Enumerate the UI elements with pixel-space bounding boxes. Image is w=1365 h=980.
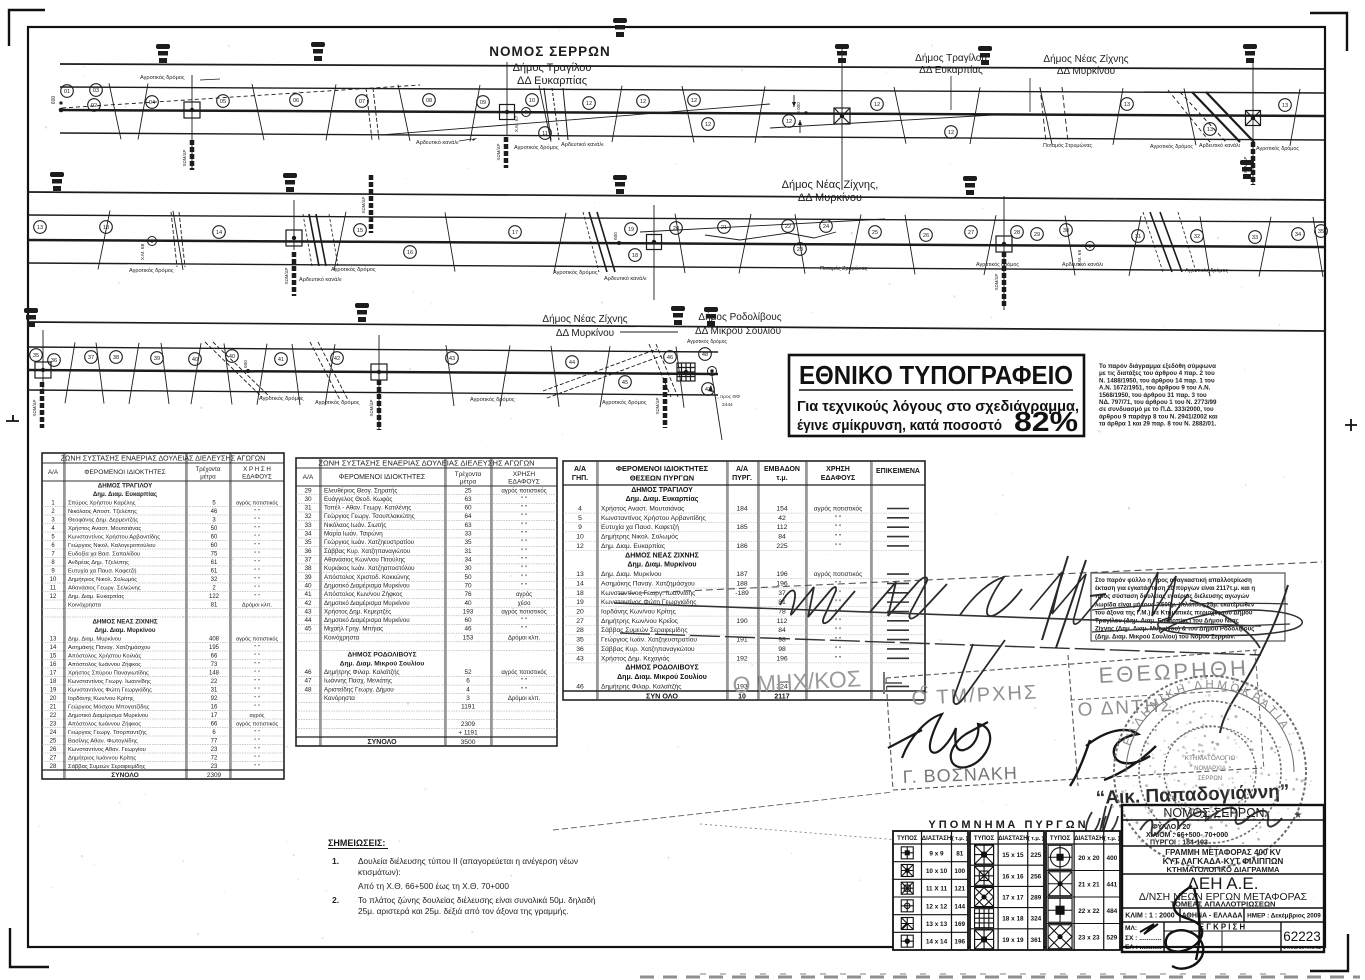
svg-text:35: 35 xyxy=(576,637,584,644)
svg-text:148: 148 xyxy=(209,670,220,676)
svg-text:13: 13 xyxy=(50,636,57,642)
svg-text:Αγροτικός δρόμος: Αγροτικός δρόμος xyxy=(1256,145,1299,152)
svg-text:Ποταμός Στρυμώνας: Ποταμός Στρυμώνας xyxy=(1043,142,1093,149)
svg-text:186: 186 xyxy=(736,543,748,550)
svg-text:″ ″: ″ ″ xyxy=(254,517,260,523)
svg-text:Α/Α: Α/Α xyxy=(574,466,586,473)
svg-text:07: 07 xyxy=(359,99,365,105)
svg-text:ΔΙΑΣΤΑΣΗ: ΔΙΑΣΤΑΣΗ xyxy=(922,836,951,842)
svg-text:ΤΥΠΟΣ: ΤΥΠΟΣ xyxy=(974,836,995,842)
svg-text:Α/Α: Α/Α xyxy=(736,466,748,473)
svg-text:ΔΔ Ευκαρπίας: ΔΔ Ευκαρπίας xyxy=(517,75,587,87)
svg-text:Αγροτικός δρόμος: Αγροτικός δρόμος xyxy=(129,267,174,274)
svg-text:″ ″: ″ ″ xyxy=(254,509,260,515)
svg-text:11: 11 xyxy=(542,131,548,137)
svg-text:13 x 13: 13 x 13 xyxy=(926,921,948,928)
svg-text:62223: 62223 xyxy=(1283,929,1321,944)
svg-text:Χ.Μ. 68: Χ.Μ. 68 xyxy=(140,243,146,260)
svg-text:″ ″: ″ ″ xyxy=(835,655,842,662)
svg-text:17: 17 xyxy=(50,670,57,676)
svg-text:1191: 1191 xyxy=(461,704,475,711)
svg-text:46: 46 xyxy=(304,669,312,676)
svg-text:25: 25 xyxy=(464,487,472,494)
svg-text:1.: 1. xyxy=(332,856,339,866)
svg-text:Αγροτικός δρόμος: Αγροτικός δρόμος xyxy=(602,399,647,406)
svg-text:35: 35 xyxy=(464,539,472,546)
svg-text:9: 9 xyxy=(578,524,582,531)
svg-text:προς ΘΦ: προς ΘΦ xyxy=(720,394,740,400)
svg-text:46: 46 xyxy=(464,626,472,633)
svg-text:Δημήτρης Φιλαρ. Καλαϊτζής: Δημήτρης Φιλαρ. Καλαϊτζής xyxy=(324,669,400,676)
svg-text:31: 31 xyxy=(211,687,218,693)
svg-text:Απόστολος Ιωάννου Ζήφκος: Απόστολος Ιωάννου Ζήφκος xyxy=(68,720,141,727)
svg-text:16: 16 xyxy=(50,662,57,668)
svg-text:225: 225 xyxy=(776,543,788,550)
svg-text:66: 66 xyxy=(211,653,218,659)
svg-text:ΠΥΡΓΟΙ : 184-193: ΠΥΡΓΟΙ : 184-193 xyxy=(1150,840,1208,847)
svg-text:12: 12 xyxy=(640,99,646,105)
svg-text:σε συνδυασμό με το Π.Δ. 333/20: σε συνδυασμό με το Π.Δ. 333/2000, του xyxy=(1099,406,1214,413)
svg-text:αγρός: αγρός xyxy=(249,712,264,719)
svg-text:Ευάγγελος Θεοδ. Κωφός: Ευάγγελος Θεοδ. Κωφός xyxy=(324,496,392,503)
svg-text:324: 324 xyxy=(1031,916,1042,923)
svg-text:ΚΤΗΜΑΤΟΛΟΓΙΚΟ ΔΙΑΓΡΑΜΜΑ: ΚΤΗΜΑΤΟΛΟΓΙΚΟ ΔΙΑΓΡΑΜΜΑ xyxy=(1166,865,1280,874)
svg-text:ΣΥΝΟΛΟ: ΣΥΝΟΛΟ xyxy=(367,739,397,746)
svg-text:2309: 2309 xyxy=(207,772,222,779)
svg-text:18: 18 xyxy=(632,253,638,259)
svg-text:42: 42 xyxy=(334,356,340,362)
svg-text:Αρδευτικό κανάλι: Αρδευτικό κανάλι xyxy=(299,276,342,283)
svg-text:75: 75 xyxy=(211,551,218,557)
svg-text:45: 45 xyxy=(622,380,628,386)
svg-text:τ.μ.: τ.μ. xyxy=(776,475,787,482)
svg-text:Γεώργιος Ιωάν. Χατζηευστρατίου: Γεώργιος Ιωάν. Χατζηευστρατίου xyxy=(601,636,697,644)
svg-text:34: 34 xyxy=(464,556,472,563)
svg-text:( τ.μ. ): ( τ.μ. ) xyxy=(1104,836,1120,842)
svg-text:Σπύρος Χρήστου Καρέλης: Σπύρος Χρήστου Καρέλης xyxy=(68,499,136,506)
svg-text:ΑΘΗΝΑ - ΕΛΛΑΔΑ: ΑΘΗΝΑ - ΕΛΛΑΔΑ xyxy=(1182,913,1243,920)
svg-text:ΔΔ Μικρού Σουλίου: ΔΔ Μικρού Σουλίου xyxy=(695,325,781,337)
svg-text:35: 35 xyxy=(304,539,312,546)
svg-text:ΧΡΗΣΗ: ΧΡΗΣΗ xyxy=(826,466,850,473)
svg-text:ΔΗΜΟΣ ΤΡΑΓΙΛΟΥ: ΔΗΜΟΣ ΤΡΑΓΙΛΟΥ xyxy=(98,482,153,489)
svg-text:με τις διατάξες του άρθρου 4 π: με τις διατάξες του άρθρου 4 παρ. 2 του xyxy=(1099,370,1215,377)
svg-text:Δήμος Νέας Ζίχνης: Δήμος Νέας Ζίχνης xyxy=(542,313,627,325)
svg-text:84: 84 xyxy=(778,534,786,541)
svg-text:13: 13 xyxy=(1124,102,1130,108)
svg-text:ΔΕΗ Α.Ε.: ΔΕΗ Α.Ε. xyxy=(1188,874,1259,893)
svg-text:14: 14 xyxy=(50,645,57,651)
svg-text:″ ″: ″ ″ xyxy=(254,687,260,693)
svg-text:Δημ. Διαμ. Μικρού Σουλίου: Δημ. Διαμ. Μικρού Σουλίου xyxy=(340,659,425,667)
svg-text:ΕΔΑΦΟΥΣ: ΕΔΑΦΟΥΣ xyxy=(508,479,540,486)
svg-text:αγρός ποτιστικός: αγρός ποτιστικός xyxy=(501,487,546,494)
svg-text:77: 77 xyxy=(211,738,218,744)
svg-text:μέτρα: μέτρα xyxy=(200,474,216,481)
svg-text:αγρός ποτιστικός: αγρός ποτιστικός xyxy=(236,499,279,506)
svg-text:Χρήστος Αναστ. Μουτσιάνας: Χρήστος Αναστ. Μουτσιάνας xyxy=(601,504,684,512)
svg-text:″ ″: ″ ″ xyxy=(254,704,260,710)
svg-text:84: 84 xyxy=(778,627,786,634)
svg-text:ΧΩΜ/ΔΡ: ΧΩΜ/ΔΡ xyxy=(182,149,187,166)
svg-text:Κωνσταντίνος Χρήστου Αρβανιτίδ: Κωνσταντίνος Χρήστου Αρβανιτίδης xyxy=(68,533,160,540)
svg-text:Ανδρέας Δημ. Τζελέπης: Ανδρέας Δημ. Τζελέπης xyxy=(68,559,129,566)
svg-text:Αγροτικός δρόμος: Αγροτικός δρόμος xyxy=(331,266,376,273)
svg-text:Χρήστος Δημ. Κεχαγιάς: Χρήστος Δημ. Κεχαγιάς xyxy=(601,654,669,662)
svg-text:Τοπέλ - Αθαν. Γεωργ. Κατιλένης: Τοπέλ - Αθαν. Γεωργ. Κατιλένης xyxy=(324,505,411,512)
svg-text:144: 144 xyxy=(954,903,965,910)
svg-text:81: 81 xyxy=(211,602,218,608)
svg-text:ΧΩΜ/ΔΡ: ΧΩΜ/ΔΡ xyxy=(32,399,37,416)
svg-text:37: 37 xyxy=(88,355,94,361)
svg-text:26: 26 xyxy=(923,233,929,239)
svg-text:28: 28 xyxy=(576,627,584,634)
svg-text:43: 43 xyxy=(576,655,584,662)
svg-text:Μαρία Ιωάν. Τσιρώνη: Μαρία Ιωάν. Τσιρώνη xyxy=(324,531,383,538)
svg-text:256: 256 xyxy=(1031,873,1042,880)
svg-text:ΦΕΡΟΜΕΝΟΙ ΙΔΙΟΚΤΗΤΕΣ: ΦΕΡΟΜΕΝΟΙ ΙΔΙΟΚΤΗΤΕΣ xyxy=(339,474,426,481)
svg-text:αγρός ποτιστικός: αγρός ποτιστικός xyxy=(501,608,546,615)
svg-text:17: 17 xyxy=(211,713,218,719)
svg-text:Χ Ρ Η Σ Η: Χ Ρ Η Σ Η xyxy=(243,466,271,473)
svg-text:″ ″: ″ ″ xyxy=(254,560,260,566)
svg-text:192: 192 xyxy=(736,655,748,662)
svg-text:31: 31 xyxy=(304,505,312,512)
svg-text:″ ″: ″ ″ xyxy=(254,543,260,549)
svg-text:″ ″: ″ ″ xyxy=(254,653,260,659)
svg-text:14: 14 xyxy=(216,230,222,236)
svg-text:″ ″: ″ ″ xyxy=(835,515,842,522)
svg-text:184: 184 xyxy=(736,505,748,512)
svg-text:187: 187 xyxy=(736,571,748,578)
svg-text:15 x 15: 15 x 15 xyxy=(1002,852,1024,859)
svg-text:14 x 14: 14 x 14 xyxy=(926,939,948,946)
svg-text:98: 98 xyxy=(778,637,786,644)
svg-text:ΔΗΜΟΣ ΤΡΑΓΙΛΟΥ: ΔΗΜΟΣ ΤΡΑΓΙΛΟΥ xyxy=(631,487,693,494)
svg-text:20: 20 xyxy=(50,696,57,702)
svg-text:32: 32 xyxy=(304,513,312,520)
svg-text:35: 35 xyxy=(33,353,39,359)
svg-text:Δημοτικό Διαμέρισμα Μυρκίνου: Δημοτικό Διαμέρισμα Μυρκίνου xyxy=(324,582,410,589)
svg-text:15: 15 xyxy=(357,228,363,234)
svg-text:Αγροτικός δρόμος: Αγροτικός δρόμος xyxy=(259,395,304,402)
svg-text:12: 12 xyxy=(586,101,592,107)
svg-text:46: 46 xyxy=(667,355,673,361)
svg-text:121: 121 xyxy=(954,886,965,893)
svg-text:ΣΧ : ............: ΣΧ : ............ xyxy=(1125,935,1161,942)
svg-text:★: ★ xyxy=(1294,810,1303,821)
svg-text:Ιορδάνης Κων/νου Κρίτης: Ιορδάνης Κων/νου Κρίτης xyxy=(68,695,134,702)
svg-text:″ ″: ″ ″ xyxy=(254,585,260,591)
svg-text:63: 63 xyxy=(464,522,472,529)
svg-text:ΣΥΝ ΟΛΟ: ΣΥΝ ΟΛΟ xyxy=(646,692,678,701)
svg-text:κτισμάτων):: κτισμάτων): xyxy=(358,867,401,877)
svg-text:″ ″: ″ ″ xyxy=(835,618,842,625)
svg-text:23: 23 xyxy=(797,247,803,253)
svg-text:600: 600 xyxy=(613,232,618,240)
svg-text:154: 154 xyxy=(776,505,788,512)
svg-text:43: 43 xyxy=(449,356,455,362)
svg-text:Αρδευτικό κανάλι: Αρδευτικό κανάλι xyxy=(561,141,604,148)
svg-text:400: 400 xyxy=(1107,855,1118,862)
svg-text:18: 18 xyxy=(576,590,584,597)
svg-text:06: 06 xyxy=(293,98,299,104)
svg-text:ΔΔ Μυρκίνου: ΔΔ Μυρκίνου xyxy=(1057,65,1115,77)
svg-text:05: 05 xyxy=(220,99,226,105)
svg-text:12: 12 xyxy=(50,594,57,600)
svg-text:23: 23 xyxy=(211,764,218,770)
svg-text:″ ″: ″ ″ xyxy=(254,696,260,702)
svg-text:Αγροτικός δρόμος: Αγροτικός δρόμος xyxy=(1185,267,1228,274)
svg-text:29: 29 xyxy=(304,487,312,494)
svg-text:Δημ. Διαμ. Ευκαρπίας: Δημ. Διαμ. Ευκαρπίας xyxy=(68,594,124,600)
svg-text:Αρδευτικό κανάλι: Αρδευτικό κανάλι xyxy=(604,275,647,282)
svg-text:29: 29 xyxy=(1034,232,1040,238)
svg-text:Δημ. Διαμ. Ευκαρπίας: Δημ. Διαμ. Ευκαρπίας xyxy=(93,491,157,498)
svg-text:Δημήτρης Νικολ. Σολωμός: Δημήτρης Νικολ. Σολωμός xyxy=(601,533,678,541)
svg-text:17: 17 xyxy=(512,230,518,236)
svg-text:ΧΙΛΙΟΜ : 66+500- 70+000: ΧΙΛΙΟΜ : 66+500- 70+000 xyxy=(1146,832,1228,839)
svg-text:21: 21 xyxy=(721,225,727,231)
svg-text:ΤΟΜΕΑΣ ΑΠΑΛΛΟΤΡΙΩΣΕΩΝ: ΤΟΜΕΑΣ ΑΠΑΛΛΟΤΡΙΩΣΕΩΝ xyxy=(1170,900,1275,909)
svg-text:( τ.μ. ): ( τ.μ. ) xyxy=(952,836,968,842)
svg-text:34: 34 xyxy=(304,531,312,538)
svg-text:36: 36 xyxy=(304,548,312,555)
svg-text:Αγροτικός δρόμος: Αγροτικός δρόμος xyxy=(140,74,185,81)
svg-text:ΖΩΝΗ ΣΥΣΤΑΣΗΣ ΕΝΑΕΡΙΑΣ ΔΟΥΛΕΙΑ: ΖΩΝΗ ΣΥΣΤΑΣΗΣ ΕΝΑΕΡΙΑΣ ΔΟΥΛΕΙΑΣ ΔΙΕΛΕΥΣΗ… xyxy=(318,459,534,468)
svg-text:23 x 23: 23 x 23 xyxy=(1078,934,1100,941)
svg-text:χέσο: χέσο xyxy=(518,600,532,607)
svg-text:Δρόμοι κλπ.: Δρόμοι κλπ. xyxy=(242,601,273,608)
svg-text:19: 19 xyxy=(50,687,57,693)
svg-text:Δρόμοι κλπ.: Δρόμοι κλπ. xyxy=(508,634,541,641)
svg-text:ΔΔ Ευκαρπίας: ΔΔ Ευκαρπίας xyxy=(919,64,983,76)
svg-text:ΧΩΜ/ΔΡ: ΧΩΜ/ΔΡ xyxy=(655,397,660,414)
svg-text:Νικόλαος Ιωάν. Σιωτής: Νικόλαος Ιωάν. Σιωτής xyxy=(324,522,386,529)
svg-text:22: 22 xyxy=(211,679,218,685)
svg-text:Σάββας Κυρ. Χατζηπαναγιώτου: Σάββας Κυρ. Χατζηπαναγιώτου xyxy=(324,548,411,555)
svg-text:ΔΔ Μυρκίνου: ΔΔ Μυρκίνου xyxy=(798,192,862,204)
svg-text:Α/Α: Α/Α xyxy=(303,474,314,481)
svg-text:Ασημάκης Παναγ. Χατζημάσχου: Ασημάκης Παναγ. Χατζημάσχου xyxy=(601,579,695,587)
svg-text:40: 40 xyxy=(464,600,472,607)
svg-text:27: 27 xyxy=(50,755,57,761)
svg-text:″ ″: ″ ″ xyxy=(254,738,260,744)
svg-text:12: 12 xyxy=(786,119,792,125)
svg-text:″ ″: ″ ″ xyxy=(254,747,260,753)
svg-text:1568/1950, του άρθρου 31 παρ.: 1568/1950, του άρθρου 31 παρ. 3 του xyxy=(1099,392,1207,399)
svg-text:″ ″: ″ ″ xyxy=(521,532,528,538)
svg-text:31: 31 xyxy=(464,548,472,555)
svg-text:16: 16 xyxy=(211,704,218,710)
svg-text:41: 41 xyxy=(304,591,312,598)
svg-text:27: 27 xyxy=(968,230,974,236)
svg-text:30: 30 xyxy=(464,565,472,572)
svg-text:10 x 10: 10 x 10 xyxy=(926,868,948,875)
svg-text:2309: 2309 xyxy=(461,721,476,728)
svg-text:40: 40 xyxy=(229,354,235,360)
svg-text:ΕΠΙΚΕΙΜΕΝΑ: ΕΠΙΚΕΙΜΕΝΑ xyxy=(876,468,920,475)
svg-text:Κυριάκος Ιωάν. Χατζηαποστόλου: Κυριάκος Ιωάν. Χατζηαποστόλου xyxy=(324,565,415,572)
svg-text:47: 47 xyxy=(705,387,711,393)
svg-text:Απόστολος Χρήστου Κοιλιάς: Απόστολος Χρήστου Κοιλιάς xyxy=(68,652,141,659)
svg-text:ΤΥΠΟΣ: ΤΥΠΟΣ xyxy=(897,836,918,842)
svg-text:19: 19 xyxy=(576,599,584,606)
svg-text:195: 195 xyxy=(209,645,220,651)
svg-text:Ελευθέριος Θεογ. Σηρατής: Ελευθέριος Θεογ. Σηρατής xyxy=(324,487,397,494)
svg-text:50: 50 xyxy=(464,574,472,581)
svg-text:50: 50 xyxy=(211,526,218,532)
svg-text:600: 600 xyxy=(51,96,57,105)
svg-text:ΔΙΑΣΤΑΣΗ: ΔΙΑΣΤΑΣΗ xyxy=(998,836,1027,842)
svg-text:έκταση για εγκατάσταση 10 πύργ: έκταση για εγκατάσταση 10 πύργων είναι 2… xyxy=(1095,585,1255,592)
svg-text:Βασίλης Αθαν. Φωτογλίδης: Βασίλης Αθαν. Φωτογλίδης xyxy=(68,738,138,744)
svg-text:ΕΔΑΦΟΥΣ: ΕΔΑΦΟΥΣ xyxy=(242,474,272,481)
svg-text:76: 76 xyxy=(464,591,472,598)
svg-text:441: 441 xyxy=(1107,881,1118,888)
svg-text:Αγροτικός δρόμος: Αγροτικός δρόμος xyxy=(514,144,559,151)
svg-text:″ ″: ″ ″ xyxy=(254,730,260,736)
svg-text:Ιωάννης Πασχ. Μενιάτης: Ιωάννης Πασχ. Μενιάτης xyxy=(324,678,392,685)
svg-text:″ ″: ″ ″ xyxy=(521,540,528,546)
svg-text:Αγροτικός δρόμος: Αγροτικός δρόμος xyxy=(315,399,360,406)
svg-text:42: 42 xyxy=(304,600,312,607)
svg-text:ΔΗΜΟΣ ΝΕΑΣ ΖΙΧΝΗΣ: ΔΗΜΟΣ ΝΕΑΣ ΖΙΧΝΗΣ xyxy=(625,552,699,559)
svg-text:408: 408 xyxy=(209,636,220,642)
svg-text:Δημήτρης Κων/νου Κρεΐος: Δημήτρης Κων/νου Κρεΐος xyxy=(601,617,678,625)
svg-text:Χρήστος Δημ. Κεμερτζές: Χρήστος Δημ. Κεμερτζές xyxy=(324,608,391,615)
svg-text:″ ″: ″ ″ xyxy=(521,687,528,693)
svg-text:ΓΗΠ.: ΓΗΠ. xyxy=(572,475,588,482)
svg-text:14: 14 xyxy=(576,580,584,587)
svg-text:39: 39 xyxy=(304,574,312,581)
svg-text:ΜΛ:: ΜΛ: xyxy=(1125,925,1137,932)
svg-text:40: 40 xyxy=(304,582,312,589)
svg-text:Δήμος Τραγίλου: Δήμος Τραγίλου xyxy=(915,52,987,64)
svg-text:Απόστολος Κων/νου Ζήφκος: Απόστολος Κων/νου Ζήφκος xyxy=(324,591,403,598)
svg-text:Χ.Μ. 67: Χ.Μ. 67 xyxy=(514,115,520,132)
svg-text:225: 225 xyxy=(1031,852,1042,859)
svg-text:10: 10 xyxy=(529,98,535,104)
svg-text:44: 44 xyxy=(569,360,575,366)
svg-text:Γεώργιος Νικολ. Καλογεροπούλου: Γεώργιος Νικολ. Καλογεροπούλου xyxy=(68,543,156,549)
svg-text:40: 40 xyxy=(192,357,198,363)
svg-text:αγρός ποτιστικός: αγρός ποτιστικός xyxy=(814,504,862,512)
svg-text:60: 60 xyxy=(211,543,218,549)
svg-text:34: 34 xyxy=(1295,232,1301,238)
svg-text:Α/Α: Α/Α xyxy=(48,469,59,476)
svg-text:52: 52 xyxy=(464,669,472,676)
svg-text:Ευτυχία χα Παυσ. Καφετζή: Ευτυχία χα Παυσ. Καφετζή xyxy=(601,523,679,531)
svg-text:″ ″: ″ ″ xyxy=(254,645,260,651)
svg-text:30: 30 xyxy=(304,496,312,503)
svg-text:Γεώργιος Ιωάν. Χατζηευστρατίου: Γεώργιος Ιωάν. Χατζηευστρατίου xyxy=(324,539,415,546)
svg-text:33: 33 xyxy=(1252,235,1258,241)
svg-text:Αριστείδης Γεωργ. Δήμου: Αριστείδης Γεωργ. Δήμου xyxy=(324,686,394,693)
svg-text:8 000: 8 000 xyxy=(796,102,801,114)
svg-text:Δήμος Ροδολίβους: Δήμος Ροδολίβους xyxy=(698,311,781,323)
svg-text:″ ″: ″ ″ xyxy=(254,568,260,574)
svg-text:Ασημάκης Παναγ. Χατζημάσχου: Ασημάκης Παναγ. Χατζημάσχου xyxy=(68,644,150,651)
svg-text:″ ″: ″ ″ xyxy=(521,523,528,529)
svg-text:Ποταμός Ζρυμώνας: Ποταμός Ζρυμώνας xyxy=(820,265,868,272)
svg-text:Σάββας Κυρ. Χατζηπαναγκώτου: Σάββας Κυρ. Χατζηπαναγκώτου xyxy=(601,645,695,653)
svg-text:ΝΔ. 797/71, του άρθρου 1 του Ν: ΝΔ. 797/71, του άρθρου 1 του Ν. 2773/99 xyxy=(1099,399,1217,406)
svg-text:190: 190 xyxy=(736,618,748,625)
svg-text:13: 13 xyxy=(1282,103,1288,109)
svg-text:ΧΩΜ/ΔΡ: ΧΩΜ/ΔΡ xyxy=(369,399,374,416)
svg-text:11 X 11: 11 X 11 xyxy=(926,886,948,893)
svg-text:61: 61 xyxy=(211,568,218,574)
svg-text:Το παρόν διάγραμμα εξεδόθη σύμ: Το παρόν διάγραμμα εξεδόθη σύμφωνα xyxy=(1099,363,1216,370)
svg-text:″ ″: ″ ″ xyxy=(521,497,528,503)
svg-text:Γεώργιος Μόσχου Μπογατζίδης: Γεώργιος Μόσχου Μπογατζίδης xyxy=(68,703,150,710)
svg-text:01: 01 xyxy=(64,89,70,95)
svg-text:3500: 3500 xyxy=(460,739,475,746)
svg-text:92: 92 xyxy=(211,696,218,702)
svg-text:Κανόρηστα: Κανόρηστα xyxy=(324,695,355,702)
svg-text:23: 23 xyxy=(50,721,57,727)
svg-text:36: 36 xyxy=(576,646,584,653)
svg-text:25: 25 xyxy=(50,738,57,744)
svg-text:Δημ. Διαμ. Μυρκίνου: Δημ. Διαμ. Μυρκίνου xyxy=(628,562,697,569)
svg-text:Από τη Χ.Θ. 66+500 έως τη Χ.Θ.: Από τη Χ.Θ. 66+500 έως τη Χ.Θ. 70+000 xyxy=(358,881,509,891)
svg-text:43: 43 xyxy=(304,608,312,615)
svg-text:33: 33 xyxy=(464,531,472,538)
svg-text:ΕΔΑΦΟΥΣ: ΕΔΑΦΟΥΣ xyxy=(821,475,855,482)
svg-text:Σάββας Συμεών Σεραφειμίδης: Σάββας Συμεών Σεραφειμίδης xyxy=(68,763,146,770)
svg-text:32: 32 xyxy=(211,577,218,583)
svg-text:″ ″: ″ ″ xyxy=(835,646,842,653)
svg-text:82%: 82% xyxy=(1014,406,1078,437)
svg-text:20: 20 xyxy=(576,608,584,615)
svg-text:2.: 2. xyxy=(332,895,339,905)
svg-text:+ 1191: + 1191 xyxy=(458,730,478,737)
svg-text:46: 46 xyxy=(576,683,584,690)
svg-text:″ ″: ″ ″ xyxy=(521,506,528,512)
svg-text:196: 196 xyxy=(954,939,965,946)
svg-text:2444: 2444 xyxy=(722,402,733,408)
svg-text:19: 19 xyxy=(628,227,634,233)
svg-text:42: 42 xyxy=(778,515,786,522)
svg-text:Ν. 1488/1950, του άρθρου 14 πα: Ν. 1488/1950, του άρθρου 14 παρ. 1 του xyxy=(1099,377,1215,384)
svg-text:″ ″: ″ ″ xyxy=(521,549,528,555)
svg-text:22: 22 xyxy=(50,713,57,719)
svg-text:38: 38 xyxy=(304,565,312,572)
svg-text:″ ″: ″ ″ xyxy=(521,627,528,633)
svg-text:12: 12 xyxy=(948,130,954,136)
svg-text:09: 09 xyxy=(480,100,486,106)
svg-text:Δημήτριος Νικολ. Σολωμός: Δημήτριος Νικολ. Σολωμός xyxy=(68,576,137,583)
svg-text:13: 13 xyxy=(37,225,43,231)
svg-text:ΣΥΝΟΛΟ: ΣΥΝΟΛΟ xyxy=(111,772,138,779)
svg-text:Αγροτικός δρόμος: Αγροτικός δρόμος xyxy=(553,269,598,276)
svg-text:38: 38 xyxy=(113,355,119,361)
svg-text:196: 196 xyxy=(776,655,788,662)
svg-text:11: 11 xyxy=(50,585,57,591)
svg-text:Το πλάτος ζώνης δουλείας διέλε: Το πλάτος ζώνης δουλείας διέλευσης είναι… xyxy=(358,895,596,905)
svg-text:ΗΜΕΡ : Δεκέμβριος 2009: ΗΜΕΡ : Δεκέμβριος 2009 xyxy=(1247,913,1321,920)
svg-text:Δημ. Διαμ. Ευκαρπίας: Δημ. Διαμ. Ευκαρπίας xyxy=(626,496,699,503)
svg-text:13: 13 xyxy=(1207,127,1213,133)
svg-text:289: 289 xyxy=(1031,895,1042,902)
svg-text:26: 26 xyxy=(50,747,57,753)
svg-text:ΤΥΠΟΣ: ΤΥΠΟΣ xyxy=(1050,836,1071,842)
svg-text:Δημήτριος Ιωάννου Κρίτης: Δημήτριος Ιωάννου Κρίτης xyxy=(68,754,136,761)
svg-text:ΔΙΑΣΤΑΣΗ: ΔΙΑΣΤΑΣΗ xyxy=(1074,836,1103,842)
svg-text:″ ″: ″ ″ xyxy=(835,534,842,541)
svg-text:33: 33 xyxy=(304,522,312,529)
